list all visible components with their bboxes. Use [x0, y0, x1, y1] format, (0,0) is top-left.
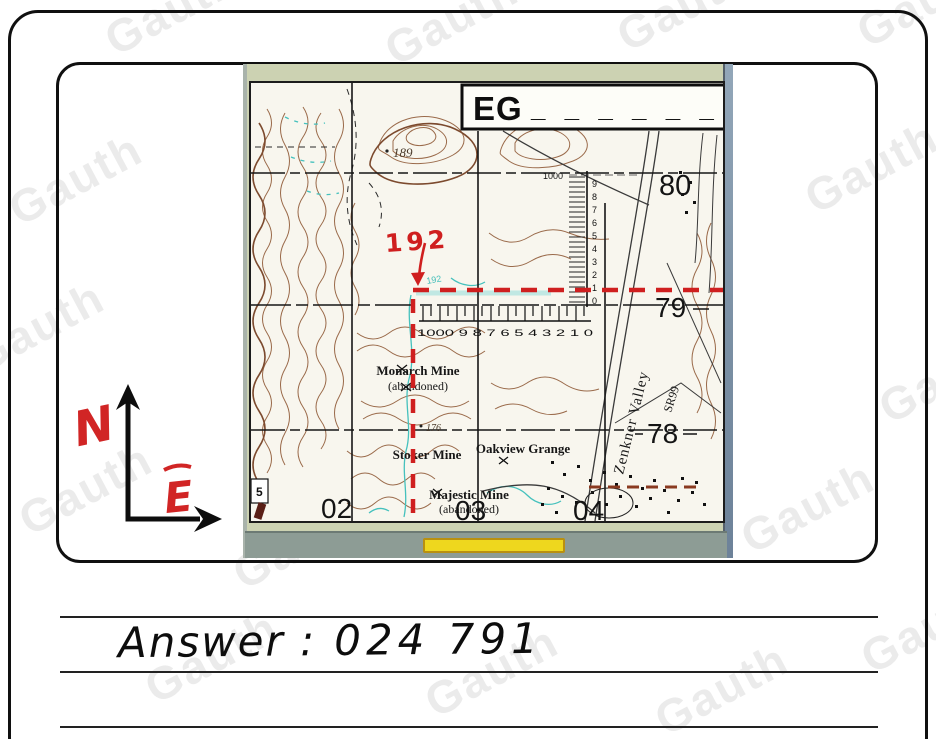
majestic-mine-label: Majestic Mine	[429, 487, 509, 502]
title-blanks: _ _ _ _ _ _	[530, 93, 720, 123]
trail-lines	[255, 89, 381, 245]
grid-reference-title-box: EG _ _ _ _ _ _	[462, 85, 723, 129]
northing-78: 78	[647, 418, 678, 449]
contour-label-192: 192	[426, 274, 443, 286]
handwritten-answer: Answer :024 791	[118, 614, 543, 667]
corner-mark	[254, 502, 267, 520]
monarch-mine-note: (abandoned)	[388, 379, 448, 393]
photo-left-edge	[243, 64, 247, 558]
vscale-digit: 5	[592, 231, 597, 241]
spot-height-176: 176	[426, 423, 441, 434]
vscale-digit: 2	[592, 270, 597, 280]
vscale-digit: 1	[592, 283, 597, 293]
vscale-top-label: 1000	[543, 171, 563, 181]
grid-number-ticks	[635, 309, 709, 434]
answer-rule-line-3	[60, 726, 878, 728]
answer-value: 024 791	[334, 614, 543, 665]
map-sheet: 1000 9 8 7 6 5 4 3 2 1 0 1000 9 8 7 6 5 …	[249, 81, 725, 523]
spot-height-dot	[420, 425, 423, 428]
compass-rose: N E	[64, 378, 244, 548]
spot-height-dot	[385, 149, 388, 152]
page: { "watermark": { "text": "Gauth" }, "com…	[0, 0, 936, 739]
photo-bottom-bar	[245, 531, 727, 558]
answer-rule-line-2	[60, 671, 878, 673]
vscale-digit: 7	[592, 205, 597, 215]
northing-80: 80	[659, 170, 691, 202]
stoker-mine-label: Stoker Mine	[393, 447, 462, 462]
vscale-digit: 0	[592, 296, 597, 306]
east-label-overbar	[164, 466, 191, 470]
red-handwritten-192: 192	[384, 225, 450, 258]
oakview-grange-label: Oakview Grange	[476, 441, 570, 456]
title-prefix: EG	[473, 90, 523, 127]
vscale-digit: 3	[592, 257, 597, 267]
topo-map-photo: 1000 9 8 7 6 5 4 3 2 1 0 1000 9 8 7 6 5 …	[243, 64, 733, 558]
place-names: Monarch Mine (abandoned) Stoker Mine Oak…	[376, 363, 682, 516]
compass-east-label: E	[162, 471, 196, 523]
monarch-mine-label: Monarch Mine	[376, 363, 459, 378]
vscale-digit: 9	[592, 179, 597, 189]
easting-02: 02	[321, 493, 352, 521]
horizontal-scale-ruler: 1000 9 8 7 6 5 4 3 2 1 0	[417, 306, 593, 338]
majestic-mine-note: (abandoned)	[439, 502, 499, 516]
vscale-digit: 8	[592, 192, 597, 202]
vscale-digit: 6	[592, 218, 597, 228]
red-arrowhead-icon	[411, 272, 425, 286]
hscale-numbers: 1000 9 8 7 6 5 4 3 2 1 0	[417, 328, 593, 338]
northing-79: 79	[655, 292, 686, 323]
vscale-digit: 4	[592, 244, 597, 254]
yellow-highlight-strip	[423, 538, 565, 553]
topographic-map: 1000 9 8 7 6 5 4 3 2 1 0 1000 9 8 7 6 5 …	[251, 83, 723, 521]
spot-height-189: 189	[393, 145, 413, 160]
road-name-label: SR99	[661, 384, 683, 414]
corner-number: 5	[256, 485, 263, 499]
easting-04: 04	[573, 495, 604, 521]
answer-prefix: Answer :	[118, 616, 317, 667]
compass-north-label: N	[68, 395, 119, 458]
